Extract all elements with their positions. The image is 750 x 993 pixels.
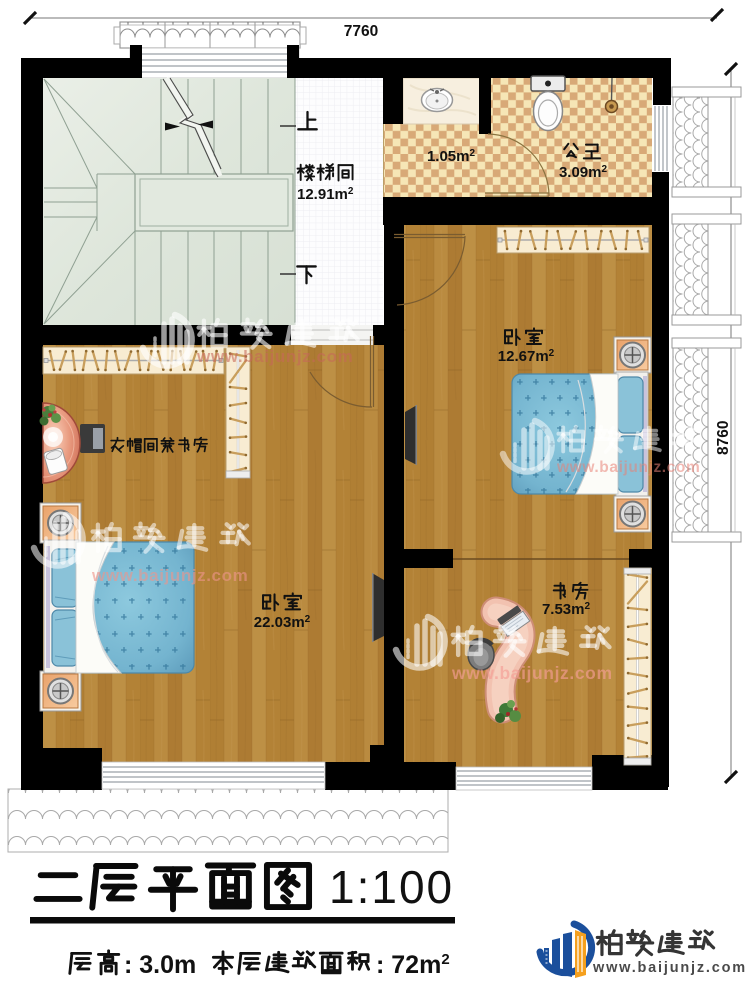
svg-text:: 3.0m: : 3.0m — [124, 951, 196, 979]
svg-text:12.91m2: 12.91m2 — [297, 186, 354, 203]
svg-text:www.baijunjz.com: www.baijunjz.com — [196, 347, 353, 366]
svg-text:22.03m2: 22.03m2 — [254, 614, 311, 631]
svg-text:7760: 7760 — [344, 23, 378, 40]
svg-text:12.67m2: 12.67m2 — [498, 348, 555, 365]
svg-text:www.baijunjz.com: www.baijunjz.com — [556, 459, 700, 476]
svg-text:: 72m2: : 72m2 — [376, 951, 450, 979]
svg-text:7.53m2: 7.53m2 — [542, 601, 591, 618]
svg-text:1.05m2: 1.05m2 — [427, 148, 476, 165]
svg-text:www.baijunjz.com: www.baijunjz.com — [91, 566, 248, 585]
svg-text:www.baijunjz.com: www.baijunjz.com — [592, 960, 747, 976]
svg-text:8760: 8760 — [715, 421, 732, 455]
svg-text:3.09m2: 3.09m2 — [559, 164, 608, 181]
svg-text:www.baijunjz.com: www.baijunjz.com — [451, 663, 613, 683]
svg-text:1:100: 1:100 — [329, 861, 454, 913]
